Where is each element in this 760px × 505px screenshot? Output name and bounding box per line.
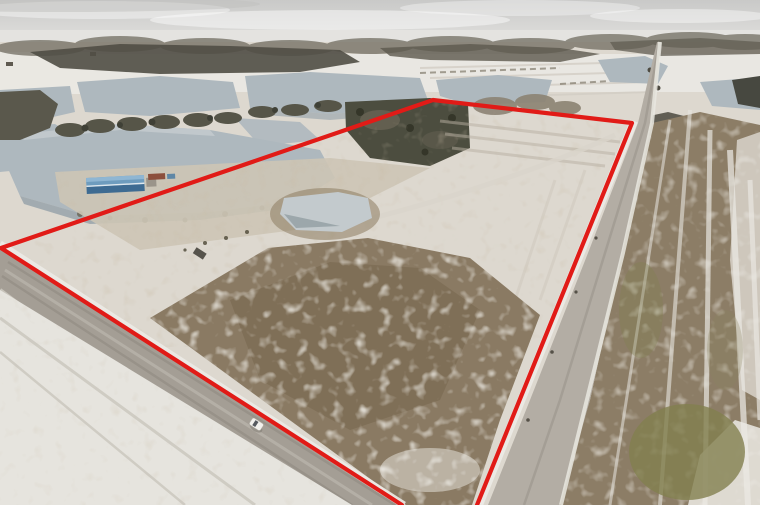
- distant-building: [6, 62, 13, 66]
- pond: [77, 76, 240, 116]
- olive-patch: [629, 404, 745, 500]
- snow-drift: [380, 448, 480, 492]
- photo-scene: [0, 0, 760, 505]
- aerial-photo: [0, 0, 760, 505]
